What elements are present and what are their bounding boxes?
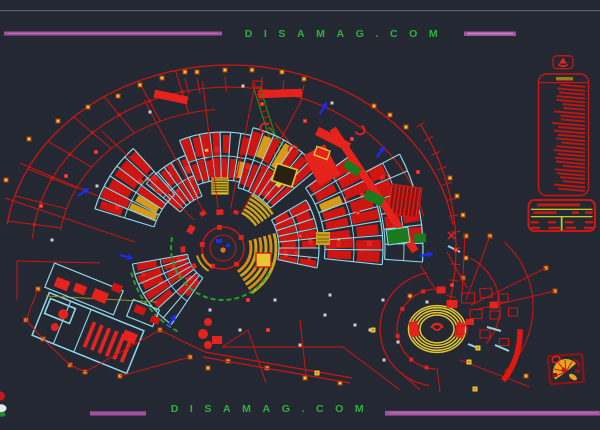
svg-text:DISAMAG.COM: DISAMAG.COM bbox=[171, 403, 376, 415]
svg-text:DISAMAG.COM: DISAMAG.COM bbox=[245, 28, 450, 40]
